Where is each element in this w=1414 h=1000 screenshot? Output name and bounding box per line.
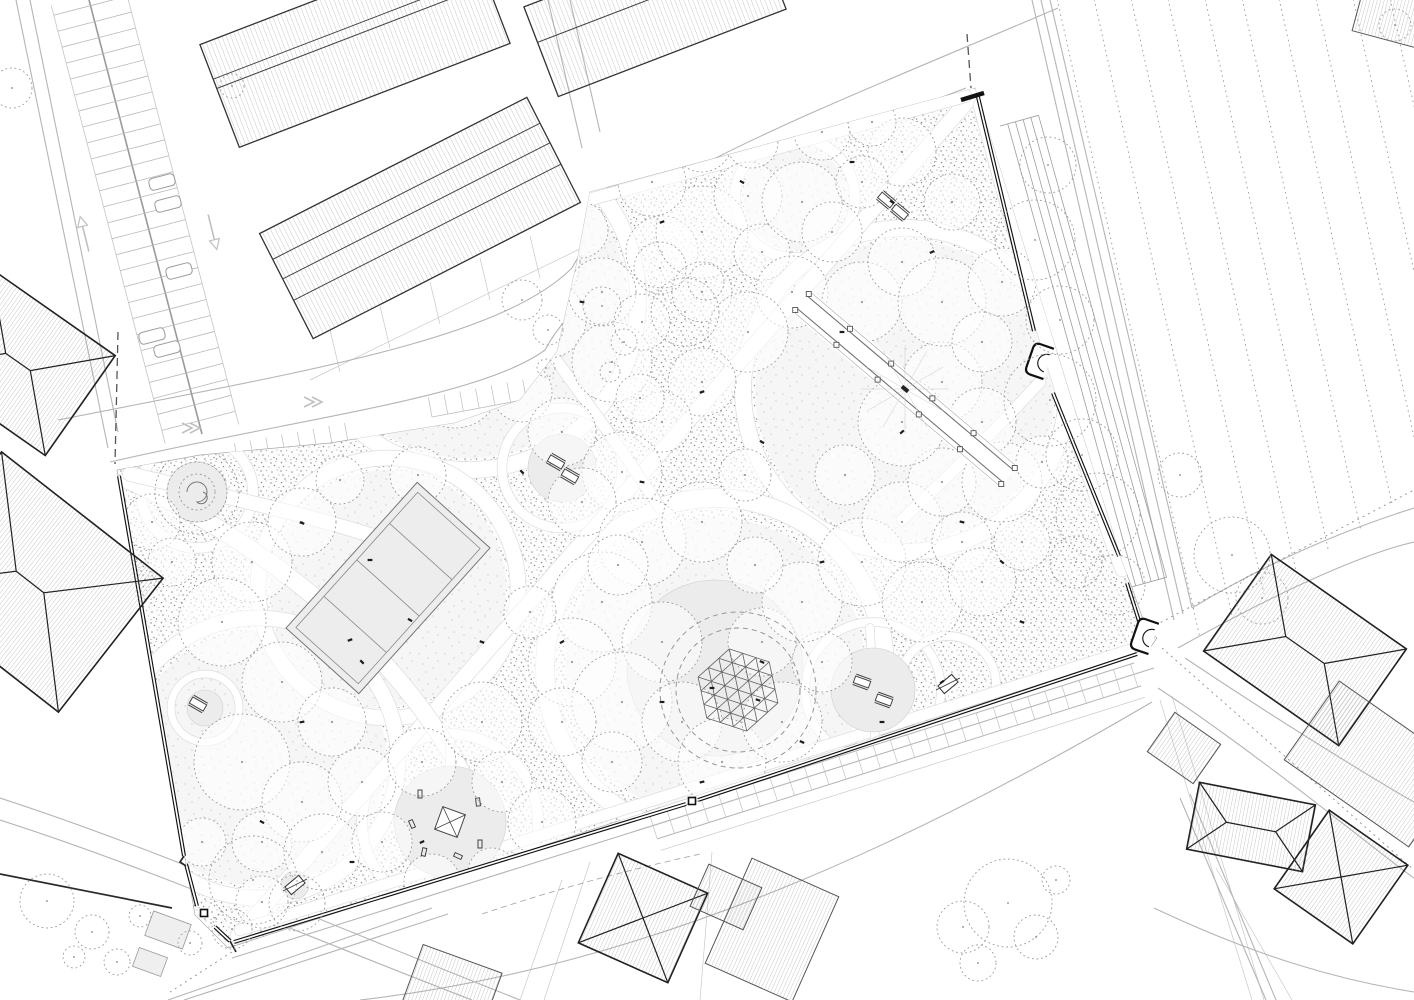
arrow-chevrons bbox=[182, 423, 200, 433]
outer-tree-trunk bbox=[1179, 474, 1181, 476]
parking-stall-line bbox=[174, 315, 211, 325]
house bbox=[402, 945, 502, 1000]
parking-stall-line bbox=[54, 6, 91, 16]
ladder-rung bbox=[890, 740, 897, 763]
house bbox=[578, 853, 707, 982]
outer-tree-trunk bbox=[1114, 584, 1116, 586]
parking-stall-line bbox=[115, 92, 152, 102]
tree-trunk bbox=[1021, 541, 1023, 543]
outer-tree-trunk bbox=[1059, 319, 1061, 321]
pergola-post bbox=[930, 396, 935, 401]
parking-stall-line bbox=[87, 133, 124, 143]
parking-stall-line bbox=[107, 60, 144, 70]
tree-trunk bbox=[821, 661, 823, 663]
crop-row-line bbox=[1278, 0, 1414, 638]
outer-tree-trunk bbox=[609, 371, 611, 373]
parking-stall-line bbox=[124, 124, 161, 134]
tree-trunk bbox=[611, 761, 613, 763]
tree-trunk bbox=[261, 841, 263, 843]
tree-trunk bbox=[601, 291, 603, 293]
outer-tree-trunk bbox=[601, 305, 603, 307]
parking-stall-line bbox=[75, 86, 112, 96]
tree-trunk bbox=[621, 471, 623, 473]
tree-trunk bbox=[801, 601, 803, 603]
outer-tree-trunk bbox=[1047, 164, 1049, 166]
stall-line bbox=[444, 394, 448, 414]
ladder-rung bbox=[942, 724, 949, 747]
parked-car bbox=[138, 327, 166, 345]
bench-glyph bbox=[840, 331, 845, 333]
ladder-rung bbox=[1028, 697, 1035, 720]
parking-stall-line bbox=[165, 284, 202, 294]
tree-trunk bbox=[529, 611, 531, 613]
property-line bbox=[480, 258, 490, 300]
ladder-rung bbox=[993, 707, 1000, 730]
tree-canopy bbox=[672, 112, 732, 172]
pergola-post bbox=[958, 447, 963, 452]
gate-pillar bbox=[201, 910, 208, 917]
ladder-rung bbox=[873, 745, 880, 768]
parking-stall-line bbox=[91, 149, 128, 159]
bench-glyph bbox=[350, 861, 355, 863]
tree-trunk bbox=[481, 721, 483, 723]
arrow-head bbox=[210, 238, 222, 250]
outer-tree-trunk bbox=[1049, 399, 1051, 401]
crop-row-line bbox=[1315, 0, 1414, 638]
tree-trunk bbox=[861, 301, 863, 303]
bench-glyph bbox=[850, 161, 855, 163]
tree-trunk bbox=[721, 761, 723, 763]
parking-stall-line bbox=[162, 421, 199, 431]
parking-stall-line bbox=[99, 181, 136, 191]
tree-trunk bbox=[491, 321, 493, 323]
tree-trunk bbox=[747, 195, 749, 197]
ladder-rung bbox=[787, 773, 794, 796]
tree-trunk bbox=[261, 901, 263, 903]
outer-tree-trunk bbox=[1261, 597, 1263, 599]
outer-tree-trunk bbox=[545, 367, 547, 369]
outer-tree-trunk bbox=[521, 299, 523, 301]
parking-stall-line bbox=[116, 245, 153, 255]
tree-trunk bbox=[381, 841, 383, 843]
parking-stall-line bbox=[149, 373, 186, 383]
pergola-post bbox=[999, 482, 1004, 487]
tree-trunk bbox=[561, 721, 563, 723]
road-edge bbox=[1154, 908, 1414, 992]
outer-tree-trunk bbox=[231, 85, 233, 87]
tree-trunk bbox=[1041, 461, 1043, 463]
parking-stall-line bbox=[103, 44, 140, 54]
bench-glyph bbox=[880, 721, 885, 723]
outer-tree-trunk bbox=[1055, 879, 1057, 881]
ladder-rung bbox=[1079, 680, 1086, 703]
site-plan-frame bbox=[0, 0, 1414, 1000]
tree-trunk bbox=[321, 851, 323, 853]
ladder-rung bbox=[804, 767, 811, 790]
pergola-post bbox=[875, 377, 880, 382]
parking-stall-line bbox=[95, 165, 132, 175]
tree-trunk bbox=[701, 381, 703, 383]
tree-trunk bbox=[361, 781, 363, 783]
tree-trunk bbox=[331, 721, 333, 723]
tree-trunk bbox=[871, 121, 873, 123]
tree-trunk bbox=[744, 474, 746, 476]
outer-tree-trunk bbox=[1231, 554, 1233, 556]
bench-glyph bbox=[710, 687, 715, 689]
arrow-head bbox=[75, 215, 87, 227]
property-line bbox=[330, 330, 340, 372]
tree-trunk bbox=[547, 319, 549, 321]
outer-tree-trunk bbox=[1097, 514, 1099, 516]
tree-trunk bbox=[301, 801, 303, 803]
tree-trunk bbox=[981, 341, 983, 343]
pergola-post bbox=[1012, 465, 1017, 470]
pergola-post bbox=[971, 431, 976, 436]
dashed-marking bbox=[170, 952, 232, 992]
ladder-rung bbox=[976, 713, 983, 736]
parking-stall-line bbox=[178, 331, 215, 341]
tree-trunk bbox=[541, 821, 543, 823]
tree-trunk bbox=[171, 561, 173, 563]
outer-tree-trunk bbox=[659, 267, 661, 269]
outer-tree-trunk bbox=[684, 311, 686, 313]
tree-trunk bbox=[701, 141, 703, 143]
tree-canopy bbox=[726, 116, 778, 168]
tree-trunk bbox=[339, 479, 341, 481]
outer-tree-trunk bbox=[11, 87, 13, 89]
outer-tree-trunk bbox=[623, 341, 625, 343]
tree-trunk bbox=[901, 261, 903, 263]
tree-trunk bbox=[901, 151, 903, 153]
ladder-rung bbox=[822, 762, 829, 785]
tree-trunk bbox=[781, 721, 783, 723]
parked-car bbox=[154, 195, 182, 213]
ladder-rung bbox=[1045, 691, 1052, 714]
tree-trunk bbox=[617, 564, 619, 566]
parking-stall-line bbox=[120, 261, 157, 271]
parking-stall-line bbox=[104, 197, 141, 207]
tree-trunk bbox=[981, 581, 983, 583]
stall-line bbox=[491, 386, 495, 406]
outer-tree-trunk bbox=[252, 879, 254, 881]
ribbed-roof bbox=[524, 0, 786, 97]
tree-trunk bbox=[491, 871, 493, 873]
tree-trunk bbox=[281, 681, 283, 683]
tree-trunk bbox=[941, 301, 943, 303]
tree-trunk bbox=[981, 421, 983, 423]
tree-trunk bbox=[251, 561, 253, 563]
tree-trunk bbox=[701, 521, 703, 523]
crop-row-line bbox=[1352, 0, 1414, 638]
pergola-post bbox=[806, 291, 811, 296]
parking-stall-line bbox=[194, 395, 231, 405]
parking-stall-line bbox=[129, 293, 166, 303]
outer-tree-trunk bbox=[91, 931, 93, 933]
parking-stall-line bbox=[149, 220, 186, 230]
parking-stall-line bbox=[169, 299, 206, 309]
tree-trunk bbox=[501, 781, 503, 783]
parking-stall-line bbox=[153, 389, 190, 399]
parking-stall-line bbox=[153, 236, 190, 246]
crop-row-line bbox=[1389, 0, 1414, 638]
tree-trunk bbox=[621, 701, 623, 703]
parking-stall-line bbox=[70, 70, 107, 80]
parking-stall-line bbox=[62, 38, 99, 48]
bench-glyph bbox=[660, 701, 665, 703]
parked-car bbox=[148, 173, 176, 191]
ladder-rung bbox=[1062, 686, 1069, 709]
tree-trunk bbox=[761, 251, 763, 253]
parking-stall-line bbox=[133, 309, 170, 319]
parked-car bbox=[153, 340, 181, 358]
parking-stall-line bbox=[66, 54, 103, 64]
parking-stall-line bbox=[158, 405, 195, 415]
bench-glyph bbox=[368, 559, 373, 561]
tree-trunk bbox=[581, 501, 583, 503]
tree-trunk bbox=[561, 431, 563, 433]
tree-trunk bbox=[921, 601, 923, 603]
parking-stall-line bbox=[145, 357, 182, 367]
parking-stall-line bbox=[79, 101, 116, 111]
ladder-rung bbox=[925, 729, 932, 752]
crop-row-line bbox=[1130, 0, 1274, 638]
parking-stall-line bbox=[95, 12, 132, 22]
parking-stall-line bbox=[132, 156, 169, 166]
tree-trunk bbox=[601, 601, 603, 603]
parking-stall-line bbox=[128, 140, 165, 150]
tree-trunk bbox=[701, 231, 703, 233]
property-line bbox=[430, 282, 440, 324]
direction-arrow bbox=[304, 397, 322, 407]
outer-tree-trunk bbox=[1007, 902, 1009, 904]
tree-trunk bbox=[661, 421, 663, 423]
industrial-building bbox=[200, 0, 510, 147]
tree-trunk bbox=[641, 541, 643, 543]
parking-stall-line bbox=[124, 277, 161, 287]
ladder-rung bbox=[684, 805, 691, 828]
arrow-chevrons bbox=[304, 397, 322, 407]
tree-trunk bbox=[747, 331, 749, 333]
property-line bbox=[520, 880, 562, 1000]
tree-canopy bbox=[468, 848, 516, 896]
property-line bbox=[530, 236, 540, 278]
outer-tree-canopy bbox=[0, 68, 32, 108]
outer-tree-trunk bbox=[977, 962, 979, 964]
pergola-post bbox=[847, 326, 852, 331]
parking-stall-line bbox=[99, 28, 136, 38]
bench-glyph bbox=[639, 820, 644, 825]
parked-car bbox=[165, 262, 193, 280]
tree-trunk bbox=[951, 201, 953, 203]
tree-trunk bbox=[801, 201, 803, 203]
outer-tree-trunk bbox=[116, 961, 118, 963]
tree-trunk bbox=[454, 381, 456, 383]
outer-tree-trunk bbox=[139, 915, 141, 917]
tree-trunk bbox=[639, 397, 641, 399]
arrow-shaft bbox=[83, 226, 89, 251]
outer-tree-trunk bbox=[1394, 24, 1396, 26]
tree-trunk bbox=[754, 564, 756, 566]
tree-canopy bbox=[442, 272, 542, 372]
tree-trunk bbox=[701, 291, 703, 293]
parking-stall-line bbox=[157, 252, 194, 262]
garden-shed bbox=[145, 911, 191, 949]
ladder-rung bbox=[907, 735, 914, 758]
outer-tree-trunk bbox=[189, 942, 191, 944]
tree-trunk bbox=[861, 561, 863, 563]
tree-trunk bbox=[791, 291, 793, 293]
tree-trunk bbox=[201, 841, 203, 843]
tree-trunk bbox=[901, 521, 903, 523]
outer-tree-trunk bbox=[547, 329, 549, 331]
tree-trunk bbox=[531, 261, 533, 263]
tree-canopy bbox=[409, 336, 501, 428]
tree-trunk bbox=[844, 474, 846, 476]
outer-tree-trunk bbox=[962, 926, 964, 928]
ladder-rung bbox=[650, 816, 657, 839]
parking-stall-line bbox=[112, 229, 149, 239]
outer-tree-trunk bbox=[1034, 239, 1036, 241]
parking-stall-line bbox=[108, 213, 145, 223]
ribbed-roof bbox=[200, 0, 510, 147]
outer-tree-trunk bbox=[705, 281, 707, 283]
stall-line bbox=[428, 397, 432, 417]
house bbox=[1352, 0, 1414, 51]
bench-glyph bbox=[459, 900, 464, 903]
ladder-rung bbox=[753, 783, 760, 806]
stall-line bbox=[460, 391, 464, 411]
pergola-post bbox=[793, 308, 798, 313]
site-plan-canvas bbox=[0, 0, 1414, 1000]
arrow-shaft bbox=[208, 214, 214, 239]
ladder-rung bbox=[770, 778, 777, 801]
dashed-marking bbox=[967, 34, 971, 88]
tree-trunk bbox=[821, 131, 823, 133]
tree-trunk bbox=[611, 361, 613, 363]
direction-arrow bbox=[203, 213, 221, 250]
dashed-marking bbox=[115, 332, 118, 464]
gate-pillar bbox=[689, 798, 696, 805]
crop-row-line bbox=[1204, 0, 1348, 638]
ladder-rung bbox=[719, 794, 726, 817]
ladder-rung bbox=[1010, 702, 1017, 725]
stall-line bbox=[345, 423, 349, 443]
tree-trunk bbox=[421, 761, 423, 763]
parking-stall-line bbox=[199, 411, 236, 421]
industrial-building bbox=[524, 0, 786, 97]
tree-trunk bbox=[221, 621, 223, 623]
tree-trunk bbox=[941, 481, 943, 483]
parking-stall-line bbox=[182, 347, 219, 357]
outer-tree-trunk bbox=[1035, 936, 1037, 938]
tree-trunk bbox=[1001, 281, 1003, 283]
tree-trunk bbox=[241, 761, 243, 763]
direction-arrow bbox=[182, 423, 200, 433]
house bbox=[0, 268, 115, 455]
tree-trunk bbox=[417, 474, 419, 476]
outer-tree-trunk bbox=[1075, 561, 1077, 563]
parking-stall-line bbox=[91, 0, 128, 6]
ladder-rung bbox=[959, 718, 966, 741]
tree-trunk bbox=[579, 229, 581, 231]
parking-stall-line bbox=[120, 108, 157, 118]
pergola-post bbox=[834, 342, 839, 347]
garden-shed bbox=[132, 947, 167, 976]
outer-tree-trunk bbox=[231, 928, 233, 930]
tree-trunk bbox=[761, 641, 763, 643]
tree-trunk bbox=[831, 231, 833, 233]
stall-line bbox=[475, 388, 479, 408]
tree-trunk bbox=[901, 421, 903, 423]
parking-stall-line bbox=[58, 22, 95, 32]
boundary-wall bbox=[0, 874, 172, 908]
outer-tree-trunk bbox=[46, 900, 48, 902]
stall-line bbox=[507, 383, 511, 403]
ladder-rung bbox=[701, 800, 708, 823]
parking-stall-line bbox=[83, 117, 120, 127]
parking-stall-line bbox=[186, 363, 223, 373]
tree-trunk bbox=[521, 391, 523, 393]
outer-tree-trunk bbox=[296, 902, 298, 904]
property-line bbox=[380, 306, 390, 348]
tree-trunk bbox=[961, 541, 963, 543]
tree-trunk bbox=[861, 181, 863, 183]
tree-trunk bbox=[751, 141, 753, 143]
tree-trunk bbox=[661, 641, 663, 643]
outer-tree-trunk bbox=[1081, 454, 1083, 456]
industrial-building bbox=[260, 97, 581, 338]
outer-tree-trunk bbox=[73, 956, 75, 958]
crop-row-line bbox=[1241, 0, 1385, 638]
ladder-rung bbox=[736, 789, 743, 812]
ladder-rung bbox=[856, 751, 863, 774]
tree-trunk bbox=[427, 301, 429, 303]
tree-trunk bbox=[651, 181, 653, 183]
bench-glyph bbox=[419, 360, 424, 364]
house-roof bbox=[402, 945, 502, 1000]
tree-trunk bbox=[571, 661, 573, 663]
tree-trunk bbox=[681, 721, 683, 723]
crop-row-line bbox=[1167, 0, 1311, 638]
parking-stall-line bbox=[111, 76, 148, 86]
tree-trunk bbox=[941, 381, 943, 383]
tree-trunk bbox=[151, 521, 153, 523]
ladder-rung bbox=[667, 811, 674, 834]
ribbed-roof bbox=[260, 97, 581, 338]
tree-trunk bbox=[641, 321, 643, 323]
ladder-rung bbox=[839, 756, 846, 779]
house-roof bbox=[1352, 0, 1414, 51]
